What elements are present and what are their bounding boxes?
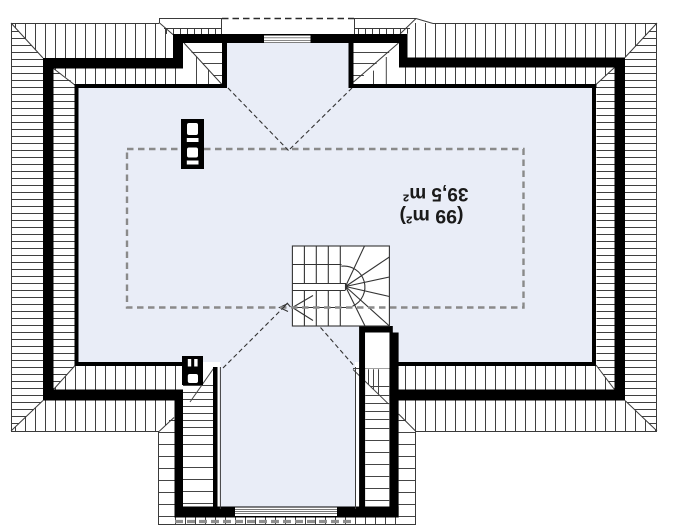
svg-text:39,5 m²: 39,5 m² [403, 183, 468, 204]
svg-text:(99 m²): (99 m²) [400, 205, 464, 227]
